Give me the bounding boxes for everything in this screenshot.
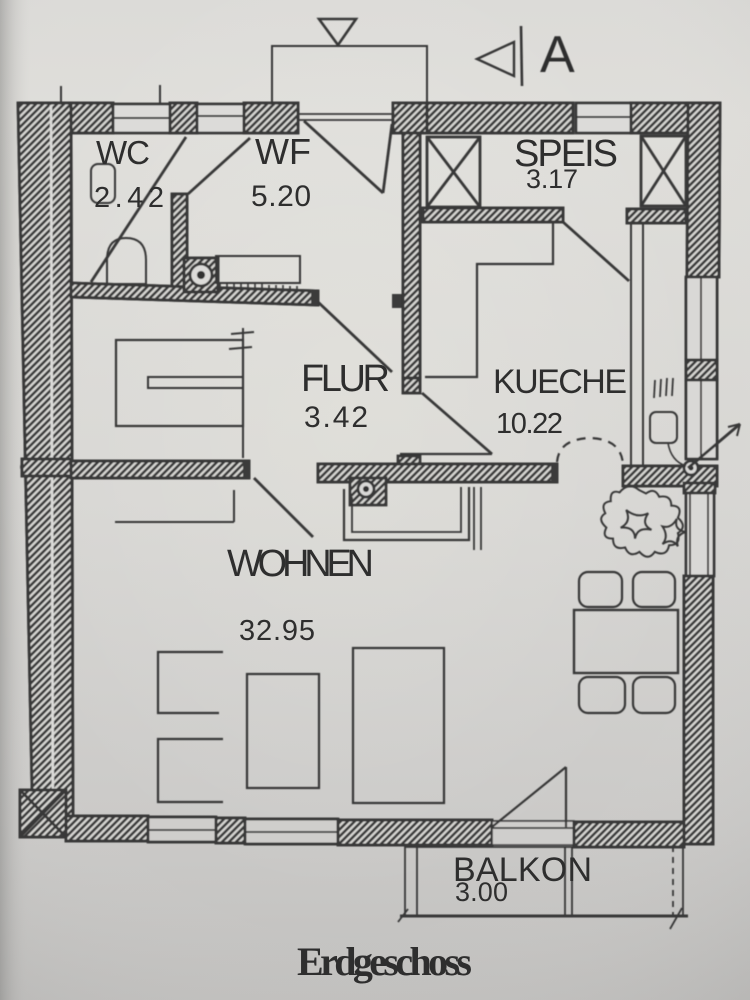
svg-text:WF: WF — [255, 131, 311, 172]
svg-text:FLUR: FLUR — [301, 358, 390, 400]
svg-text:WC: WC — [96, 134, 150, 171]
svg-text:Erdgeschoss: Erdgeschoss — [297, 939, 472, 984]
svg-text:32.95: 32.95 — [239, 615, 315, 647]
svg-text:2.42: 2.42 — [94, 182, 164, 214]
svg-text:5.20: 5.20 — [251, 180, 311, 213]
svg-text:10.22: 10.22 — [496, 408, 563, 440]
svg-text:3.42: 3.42 — [304, 401, 368, 434]
svg-text:3.00: 3.00 — [455, 877, 508, 907]
svg-text:WOHNEN: WOHNEN — [227, 543, 374, 585]
svg-text:KUECHE: KUECHE — [493, 363, 627, 401]
svg-text:3.17: 3.17 — [526, 164, 578, 194]
svg-text:A: A — [540, 26, 575, 84]
